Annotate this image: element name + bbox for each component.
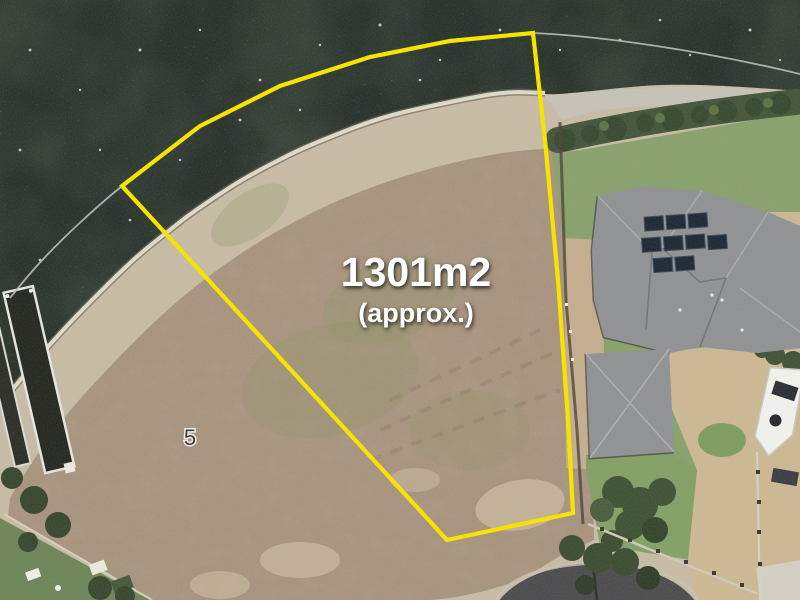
- aerial-photo: 5 1301m2 (approx.): [0, 0, 800, 600]
- lot-number-label: 5: [184, 425, 196, 450]
- area-approx-label: (approx.): [358, 298, 474, 328]
- area-label: 1301m2: [341, 249, 491, 295]
- aerial-photo-canvas: 5 1301m2 (approx.): [0, 0, 800, 600]
